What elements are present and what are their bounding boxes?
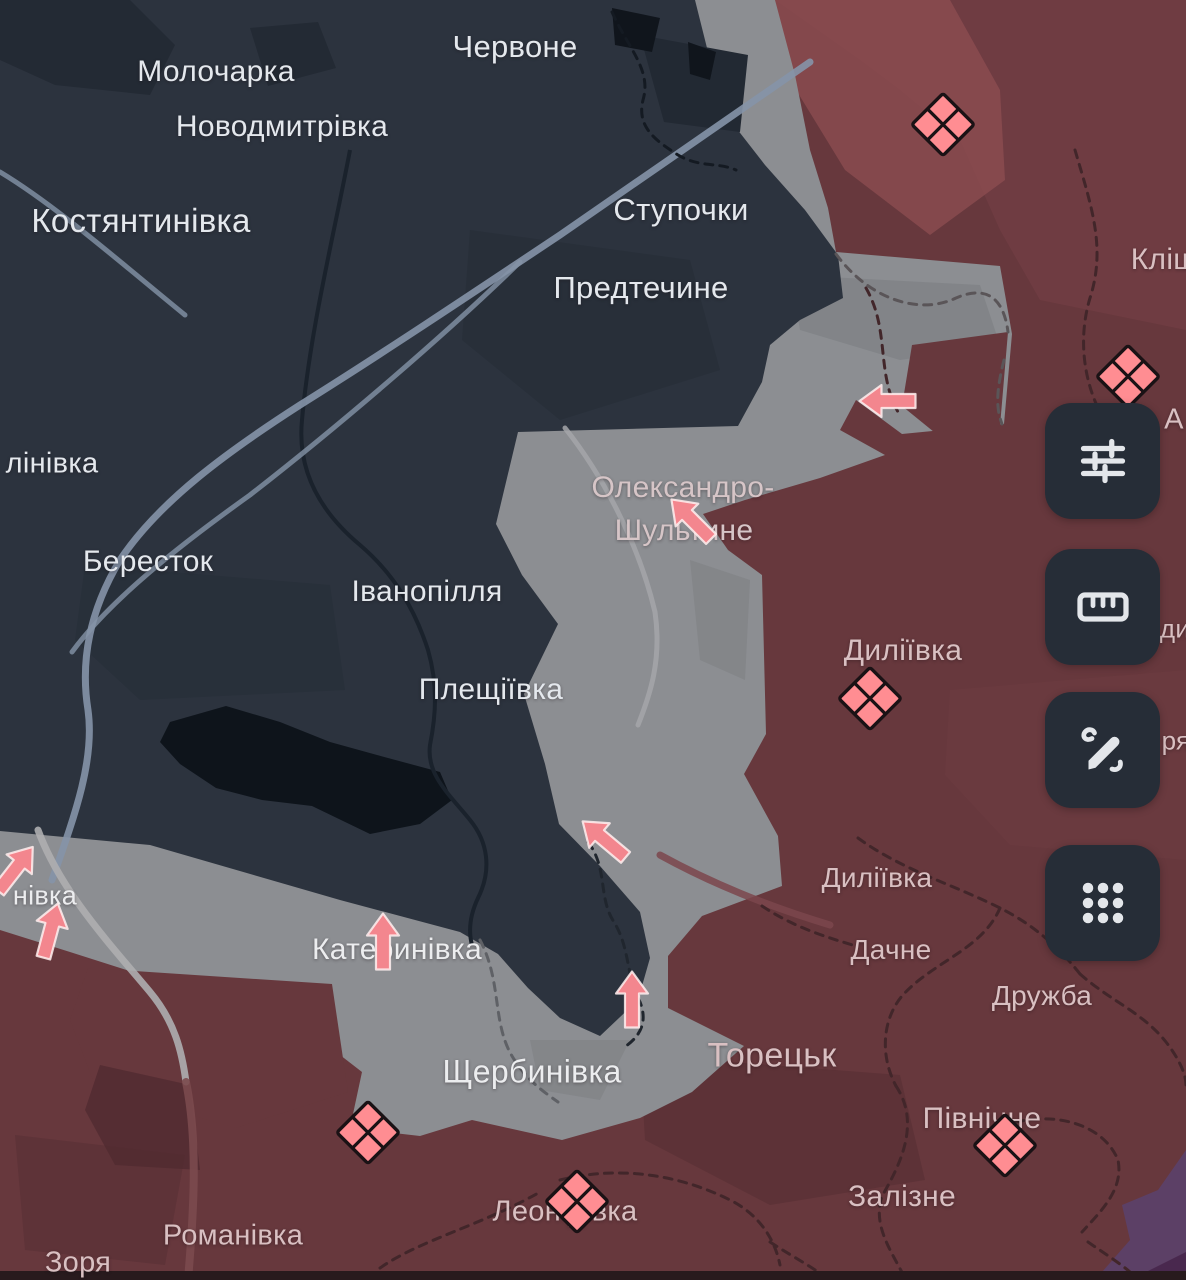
attack-arrow-icon: [351, 910, 415, 974]
territory-layers: [0, 0, 1186, 1280]
battle-marker[interactable]: [835, 664, 905, 739]
battle-marker[interactable]: [333, 1098, 403, 1173]
pen-icon: [1073, 720, 1133, 780]
ruler-icon: [1073, 577, 1133, 637]
attack-arrow: [856, 369, 925, 433]
attack-arrow: [351, 910, 415, 979]
battle-diamond-icon: [542, 1167, 612, 1237]
map-filters-button[interactable]: [1045, 403, 1160, 519]
apps-grid-icon: [1073, 873, 1133, 933]
draw-button[interactable]: [1045, 692, 1160, 808]
battle-diamond-icon: [970, 1111, 1040, 1181]
attack-arrow-icon: [856, 369, 920, 433]
battle-marker[interactable]: [970, 1111, 1040, 1186]
attack-arrow-icon: [600, 968, 664, 1032]
battle-diamond-icon: [835, 664, 905, 734]
battle-diamond-icon: [1093, 342, 1163, 412]
battle-marker[interactable]: [542, 1167, 612, 1242]
measure-button[interactable]: [1045, 549, 1160, 665]
apps-button[interactable]: [1045, 845, 1160, 961]
attack-arrow: [600, 968, 664, 1037]
sliders-icon: [1073, 431, 1133, 491]
map-canvas[interactable]: ЧервонеМолочаркаНоводмитрівкаКостянтинів…: [0, 0, 1186, 1280]
battle-diamond-icon: [908, 90, 978, 160]
battle-diamond-icon: [333, 1098, 403, 1168]
battle-marker[interactable]: [908, 90, 978, 165]
bottom-strip: [0, 1271, 1186, 1280]
